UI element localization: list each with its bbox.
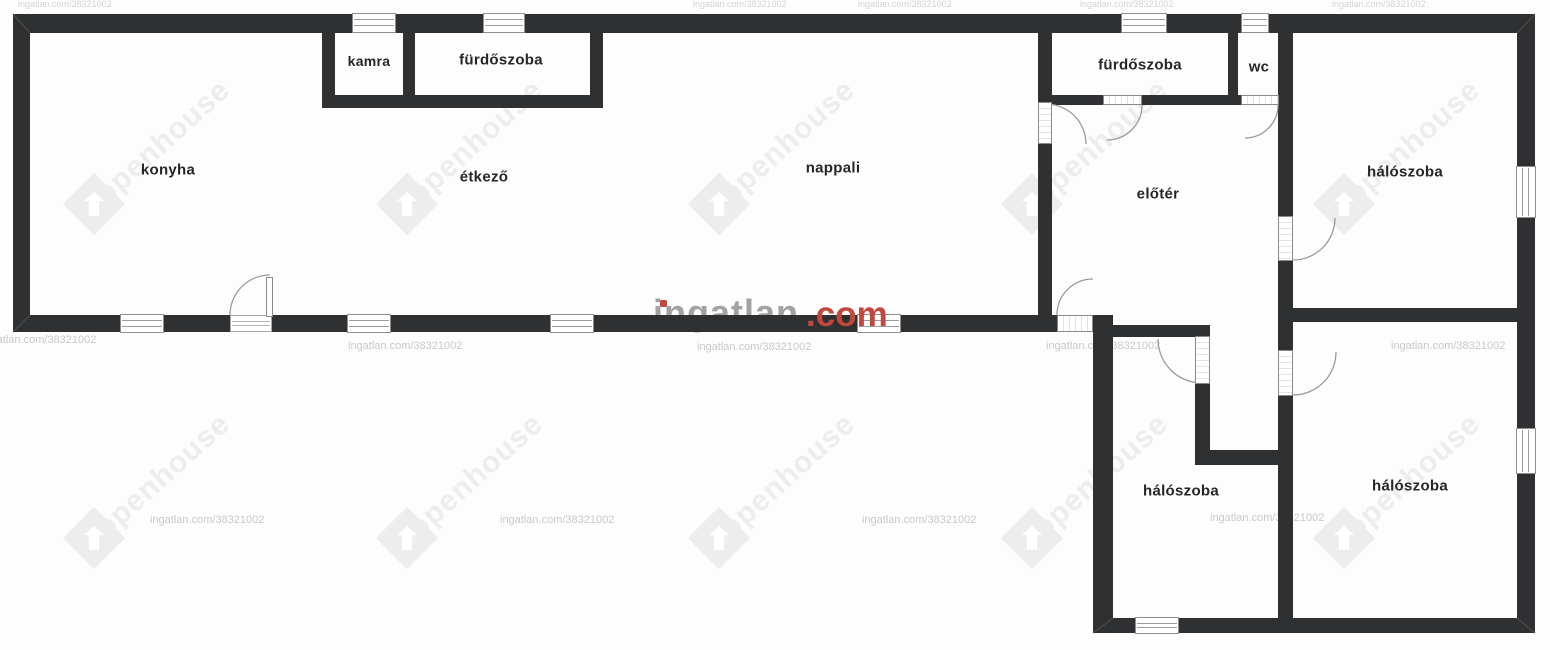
room-label-furdoszoba-1: fürdőszoba [459,52,543,69]
openhouse-watermark-text: openhouse [1339,73,1487,211]
openhouse-house-icon [84,526,104,550]
openhouse-watermark-text: openhouse [714,407,862,545]
door-threshold [230,315,272,332]
door-leaf [266,277,273,317]
wall-segment [1293,308,1517,322]
openhouse-watermark-text: openhouse [714,73,862,211]
window [1135,617,1179,634]
door-arc-haloszoba-3 [1293,352,1336,395]
openhouse-logo-icon [1001,173,1063,235]
openhouse-watermark: openhouse [383,420,543,570]
wall-segment [1113,325,1198,337]
openhouse-house-icon [1334,192,1354,216]
door-leaf [1103,95,1142,105]
room-label-haloszoba-3: hálószoba [1372,478,1448,495]
wall-segment [322,95,603,108]
listing-watermark-text: ingatlan.com/38321002 [18,0,112,9]
door-arc-furdoszoba-2 [1107,105,1142,140]
ingatlan-i-dot [660,300,667,307]
listing-watermark-text: ingatlan.com/38321002 [693,0,787,9]
room-label-wc: wc [1249,59,1270,76]
room-label-furdoszoba-2: fürdőszoba [1098,57,1182,74]
room-label-haloszoba-2: hálószoba [1143,483,1219,500]
openhouse-watermark: openhouse [1320,86,1480,236]
window [120,314,164,333]
room-label-konyha: konyha [141,162,195,179]
openhouse-logo-icon [376,173,438,235]
openhouse-logo-icon [1313,173,1375,235]
openhouse-watermark: openhouse [1008,86,1168,236]
openhouse-watermark-text: openhouse [1339,407,1487,545]
openhouse-logo-icon [688,507,750,569]
openhouse-watermark: openhouse [70,420,230,570]
door-leaf [1057,315,1093,332]
openhouse-house-icon [1334,526,1354,550]
openhouse-logo-icon [688,173,750,235]
listing-watermark-text: ingatlan.com/38321002 [697,341,811,353]
window [483,13,525,33]
door-arc-nappali-eloter [1046,104,1086,144]
openhouse-house-icon [84,192,104,216]
openhouse-watermark: openhouse [383,86,543,236]
listing-watermark-text: ingatlan.com/38321002 [1210,512,1324,524]
wall-segment [1093,315,1113,633]
room-label-nappali: nappali [806,160,861,177]
openhouse-watermark: openhouse [1320,420,1480,570]
wall-segment [1228,33,1238,95]
wall-segment [1038,33,1052,315]
openhouse-house-icon [709,192,729,216]
listing-watermark-text: ingatlan.com/38321002 [500,514,614,526]
door-leaf [1241,95,1279,105]
room-label-kamra: kamra [348,53,391,69]
wall-segment [1278,33,1293,618]
wall-segment [13,14,1535,33]
listing-watermark-text: ingatlan.com/38321002 [0,334,96,346]
openhouse-house-icon [397,192,417,216]
window [1516,428,1536,474]
listing-watermark-text: ingatlan.com/38321002 [150,514,264,526]
listing-watermark-text: ingatlan.com/38321002 [1332,0,1426,9]
openhouse-house-icon [397,526,417,550]
room-label-etkezo: étkező [460,169,509,186]
listing-watermark-text: ingatlan.com/38321002 [1391,340,1505,352]
wall-segment [1517,14,1535,633]
wall-segment [1207,450,1278,465]
openhouse-watermark: openhouse [695,420,855,570]
door-leaf [1278,350,1293,396]
window [550,314,594,333]
window [1121,13,1167,33]
openhouse-logo-icon [1001,507,1063,569]
openhouse-house-icon [1022,526,1042,550]
listing-watermark-text: ingatlan.com/38321002 [862,514,976,526]
ingatlan-com-watermark-text: .com [806,295,888,335]
door-leaf [1195,336,1210,384]
listing-watermark-text: ingatlan.com/38321002 [858,0,952,9]
openhouse-logo-icon [63,173,125,235]
room-label-haloszoba-1: hálószoba [1367,164,1443,181]
openhouse-watermark-text: openhouse [89,73,237,211]
door-leaf [1038,102,1052,144]
listing-watermark-text: ingatlan.com/38321002 [348,340,462,352]
window [352,13,396,33]
wall-segment [13,14,30,332]
wall-segment [403,33,415,95]
window [347,314,391,333]
door-arc-wc [1245,105,1278,138]
door-arc-konyha [230,275,270,315]
openhouse-house-icon [709,526,729,550]
floorplan-canvas: ingatlan .com konyha kamra fürdőszoba ét… [0,0,1550,650]
window [1241,13,1269,33]
door-arc-haloszoba-1 [1293,218,1335,260]
door-leaf [1278,216,1293,261]
window [1516,166,1536,218]
room-label-eloter: előtér [1137,186,1180,203]
openhouse-logo-icon [376,507,438,569]
door-arc-entrance [1057,279,1093,315]
listing-watermark-text: ingatlan.com/38321002 [1080,0,1174,9]
openhouse-logo-icon [63,507,125,569]
